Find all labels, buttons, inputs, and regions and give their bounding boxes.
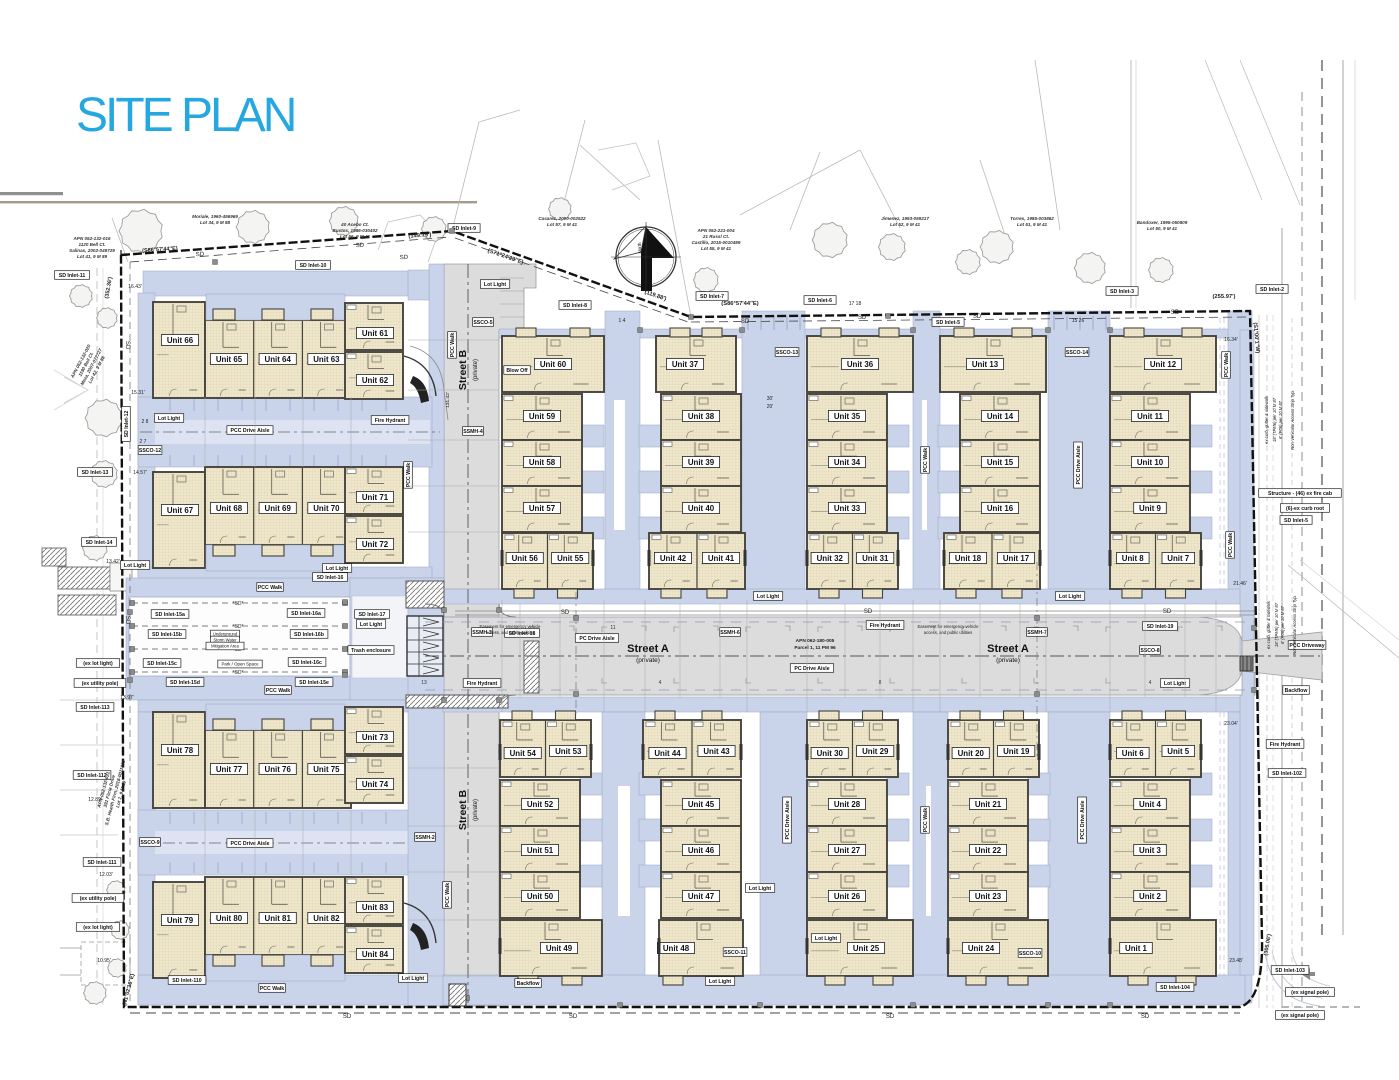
svg-text:20': 20'	[767, 404, 774, 410]
svg-text:Lot Light: Lot Light	[402, 976, 424, 982]
svg-text:17 18: 17 18	[849, 301, 862, 307]
svg-text:Salinas, 2002-049729: Salinas, 2002-049729	[69, 248, 115, 253]
svg-text:SD: SD	[1141, 1014, 1150, 1020]
svg-text:(private): (private)	[996, 657, 1020, 664]
svg-text:21.46': 21.46'	[1233, 581, 1247, 587]
svg-text:Lot Light: Lot Light	[1059, 594, 1081, 600]
svg-text:Unit 16: Unit 16	[987, 504, 1014, 513]
svg-text:APN 062-180-005: APN 062-180-005	[796, 638, 835, 644]
svg-text:SD: SD	[886, 1014, 895, 1020]
svg-text:Unit 78: Unit 78	[167, 746, 194, 755]
svg-text:Unit 53: Unit 53	[555, 747, 582, 756]
svg-text:*SD*: *SD*	[233, 670, 244, 676]
svg-text:Unit 3: Unit 3	[1139, 846, 1162, 855]
svg-text:6' (P06) per 10 M 87: 6' (P06) per 10 M 87	[1278, 400, 1283, 439]
svg-text:Unit 28: Unit 28	[834, 800, 861, 809]
svg-text:18' (TPM6) per 10 M 87: 18' (TPM6) per 10 M 87	[1272, 397, 1277, 442]
svg-text:PCC Drive Aisle: PCC Drive Aisle	[785, 800, 791, 839]
svg-text:Lot 34, 9 M 88: Lot 34, 9 M 88	[200, 220, 231, 225]
svg-text:ex curb, gutter & sidewalk: ex curb, gutter & sidewalk	[1264, 395, 1269, 444]
svg-text:Unit 54: Unit 54	[510, 749, 537, 758]
svg-text:Jimenez, 1993-059217: Jimenez, 1993-059217	[881, 216, 929, 221]
svg-text:Storm Water: Storm Water	[213, 638, 237, 643]
svg-text:SSMH-4: SSMH-4	[463, 429, 483, 435]
svg-text:PCC Drive Aisle: PCC Drive Aisle	[1080, 800, 1086, 839]
svg-text:Unit 60: Unit 60	[540, 360, 567, 369]
svg-text:Unit 6: Unit 6	[1122, 749, 1145, 758]
svg-text:SD Inlet-16a: SD Inlet-16a	[291, 611, 321, 617]
svg-text:PCC Walk: PCC Walk	[445, 883, 451, 907]
svg-text:Fire Hydrant: Fire Hydrant	[375, 418, 406, 424]
svg-text:14.57': 14.57'	[133, 470, 147, 476]
svg-text:Non-Vehicular Access Strip Typ: Non-Vehicular Access Strip Typ.	[1290, 390, 1295, 450]
svg-text:Unit 55: Unit 55	[557, 554, 584, 563]
svg-text:Unit 42: Unit 42	[660, 554, 687, 563]
svg-text:Unit 34: Unit 34	[834, 458, 861, 467]
svg-text:Unit 47: Unit 47	[688, 892, 715, 901]
svg-text:SD: SD	[858, 315, 867, 321]
svg-text:SD Inlet-5: SD Inlet-5	[936, 320, 960, 326]
svg-text:Unit 30: Unit 30	[817, 749, 844, 758]
svg-text:(private): (private)	[636, 657, 660, 664]
svg-text:Unit 70: Unit 70	[313, 504, 340, 513]
svg-text:Unit 72: Unit 72	[362, 540, 389, 549]
svg-text:Unit 61: Unit 61	[362, 329, 389, 338]
svg-text:SSMH-2: SSMH-2	[415, 835, 435, 841]
svg-text:Backflow: Backflow	[517, 981, 541, 987]
svg-text:4: 4	[659, 680, 662, 686]
svg-text:Unit 18: Unit 18	[955, 554, 982, 563]
svg-text:Unit 51: Unit 51	[527, 846, 554, 855]
svg-text:Unit 13: Unit 13	[972, 360, 999, 369]
svg-text:Unit 56: Unit 56	[512, 554, 539, 563]
svg-text:SD: SD	[1171, 310, 1180, 316]
svg-text:Unit 49: Unit 49	[546, 944, 573, 953]
svg-text:Unit 17: Unit 17	[1003, 554, 1030, 563]
svg-text:Torres, 1985-003862: Torres, 1985-003862	[1010, 216, 1054, 221]
svg-text:APN 052-221-004: APN 052-221-004	[696, 228, 734, 233]
svg-text:Unit 36: Unit 36	[847, 360, 874, 369]
svg-text:ex curb, gutter & sidewalk: ex curb, gutter & sidewalk	[1266, 600, 1271, 649]
svg-text:Unit 27: Unit 27	[834, 846, 861, 855]
svg-text:23.48': 23.48'	[1229, 958, 1243, 964]
svg-text:Unit 5: Unit 5	[1167, 747, 1190, 756]
svg-text:SD Inlet-8: SD Inlet-8	[563, 303, 587, 309]
svg-text:PCC Drive Aisle: PCC Drive Aisle	[230, 428, 269, 434]
svg-text:SSCO-9: SSCO-9	[140, 840, 159, 846]
svg-text:PC Drive Aisle: PC Drive Aisle	[579, 636, 614, 642]
svg-text:Street A: Street A	[987, 643, 1029, 655]
svg-text:Unit 12: Unit 12	[1150, 360, 1177, 369]
svg-text:Parcel 1, 11 PM 96: Parcel 1, 11 PM 96	[794, 645, 836, 651]
svg-text:Unit 62: Unit 62	[362, 376, 389, 385]
svg-text:Unit 48: Unit 48	[663, 944, 690, 953]
svg-text:SD: SD	[864, 609, 873, 615]
svg-text:Unit 19: Unit 19	[1003, 747, 1030, 756]
svg-text:Unit 74: Unit 74	[362, 780, 389, 789]
svg-text:Unit 25: Unit 25	[853, 944, 880, 953]
svg-text:(255.97′): (255.97′)	[1213, 294, 1236, 300]
svg-text:SD: SD	[973, 314, 982, 320]
svg-text:PCC Drive Aisle: PCC Drive Aisle	[230, 841, 269, 847]
svg-text:SD Inlet-19: SD Inlet-19	[1147, 624, 1174, 630]
svg-text:PCC Walk: PCC Walk	[923, 808, 929, 832]
svg-text:SD Inlet-6: SD Inlet-6	[808, 298, 832, 304]
svg-text:Unit 83: Unit 83	[362, 903, 389, 912]
svg-text:Unit 22: Unit 22	[975, 846, 1002, 855]
svg-text:PCC Walk: PCC Walk	[260, 986, 284, 992]
svg-text:SD Inlet-111: SD Inlet-111	[87, 860, 116, 866]
svg-text:SD Inlet-12: SD Inlet-12	[124, 410, 130, 437]
svg-text:18' (TPM6) per 10 M 87: 18' (TPM6) per 10 M 87	[1274, 602, 1279, 647]
svg-text:16.34': 16.34'	[1224, 337, 1238, 343]
svg-text:PCC Walk: PCC Walk	[1228, 533, 1234, 557]
svg-text:(ex utility pole): (ex utility pole)	[82, 681, 119, 687]
svg-text:PCC Drive Aisle: PCC Drive Aisle	[1076, 445, 1082, 484]
svg-text:Unit 24: Unit 24	[968, 944, 995, 953]
svg-text:Lot Light: Lot Light	[124, 563, 146, 569]
svg-text:Unit 39: Unit 39	[688, 458, 715, 467]
svg-text:30': 30'	[767, 396, 774, 402]
svg-text:2 7: 2 7	[140, 439, 147, 445]
svg-text:SD Inlet-11: SD Inlet-11	[59, 273, 86, 279]
svg-text:SD Inlet-17: SD Inlet-17	[359, 612, 386, 618]
svg-text:PCC Walk: PCC Walk	[1224, 353, 1230, 377]
svg-text:Lot Light: Lot Light	[815, 936, 837, 942]
svg-text:*SD*: *SD*	[233, 601, 244, 607]
svg-text:Unit 8: Unit 8	[1122, 554, 1145, 563]
svg-text:Trash enclosure: Trash enclosure	[351, 648, 391, 654]
svg-text:40 Acebo Ct.: 40 Acebo Ct.	[340, 222, 369, 227]
svg-text:Unit 10: Unit 10	[1137, 458, 1164, 467]
svg-text:access, and public utilities: access, and public utilities	[924, 630, 972, 635]
svg-text:Unit 40: Unit 40	[688, 504, 715, 513]
svg-text:Unit 59: Unit 59	[529, 412, 556, 421]
svg-text:15 26: 15 26	[1072, 318, 1085, 324]
svg-text:Unit 11: Unit 11	[1137, 412, 1163, 421]
svg-text:(ex utility pole): (ex utility pole)	[80, 896, 117, 902]
svg-text:Lot Light: Lot Light	[757, 594, 779, 600]
svg-text:Unit 50: Unit 50	[527, 892, 554, 901]
svg-text:Unit 73: Unit 73	[362, 733, 389, 742]
svg-text:SD Inlet-112: SD Inlet-112	[77, 773, 107, 779]
svg-text:Unit 9: Unit 9	[1139, 504, 1162, 513]
svg-text:(ex lot light): (ex lot light)	[83, 661, 113, 667]
svg-text:Street B: Street B	[457, 349, 469, 390]
svg-text:SD Inlet-16b: SD Inlet-16b	[294, 632, 324, 638]
svg-text:SSCO-11: SSCO-11	[724, 950, 746, 956]
svg-text:Unit 35: Unit 35	[834, 412, 861, 421]
svg-text:Lot 55, 9 M 41: Lot 55, 9 M 41	[701, 246, 732, 251]
svg-text:Lot Light: Lot Light	[749, 886, 771, 892]
svg-text:12.03': 12.03'	[99, 872, 113, 878]
svg-text:Unit 4: Unit 4	[1139, 800, 1162, 809]
svg-text:Unit 32: Unit 32	[817, 554, 844, 563]
svg-text:Lot 50, 9 M 41: Lot 50, 9 M 41	[1147, 226, 1178, 231]
svg-text:PCC Walk: PCC Walk	[266, 688, 290, 694]
svg-text:Unit 37: Unit 37	[672, 360, 699, 369]
svg-text:Unit 79: Unit 79	[167, 916, 194, 925]
svg-text:SD: SD	[196, 252, 205, 259]
svg-text:(ex lot light): (ex lot light)	[83, 925, 113, 931]
svg-text:SD Inlet-14: SD Inlet-14	[86, 540, 113, 546]
svg-text:SD: SD	[356, 243, 365, 250]
svg-text:APN 052-132-016: APN 052-132-016	[72, 236, 110, 241]
svg-text:*SD*: *SD*	[233, 624, 244, 630]
svg-text:Lot Light: Lot Light	[709, 979, 731, 985]
svg-text:4: 4	[1149, 680, 1152, 686]
svg-text:SD Inlet-113: SD Inlet-113	[80, 705, 110, 711]
svg-text:Street B: Street B	[457, 789, 469, 830]
svg-text:Unit 63: Unit 63	[313, 355, 340, 364]
svg-text:Unit 65: Unit 65	[216, 355, 243, 364]
svg-text:Street A: Street A	[627, 643, 669, 655]
svg-text:SD: SD	[1163, 609, 1172, 615]
svg-text:Lot Light: Lot Light	[326, 566, 348, 572]
svg-text:Underground: Underground	[213, 632, 238, 637]
svg-text:Unit 64: Unit 64	[265, 355, 292, 364]
svg-text:SD Inlet-104: SD Inlet-104	[1160, 985, 1190, 991]
svg-text:Unit 71: Unit 71	[362, 493, 389, 502]
svg-text:SD Inlet-10: SD Inlet-10	[300, 263, 327, 269]
svg-text:Lot 56, 9 M 41: Lot 56, 9 M 41	[340, 234, 371, 239]
svg-text:SSMH-7: SSMH-7	[1027, 630, 1047, 636]
svg-text:Unit 14: Unit 14	[987, 412, 1014, 421]
svg-text:Unit 81: Unit 81	[265, 914, 292, 923]
svg-text:Unit 77: Unit 77	[216, 765, 243, 774]
svg-text:PCC Walk: PCC Walk	[923, 448, 929, 472]
svg-text:Casarez, 2000-002522: Casarez, 2000-002522	[538, 216, 586, 221]
svg-text:Unit 21: Unit 21	[975, 800, 1002, 809]
svg-text:Mitigation Area: Mitigation Area	[211, 644, 239, 649]
svg-text:Fire Hydrant: Fire Hydrant	[1270, 742, 1301, 748]
svg-text:(ex signal pole): (ex signal pole)	[1281, 1013, 1319, 1019]
svg-text:SD: SD	[124, 616, 130, 625]
svg-text:2 8: 2 8	[142, 419, 149, 425]
svg-text:13.42': 13.42'	[106, 559, 120, 565]
svg-text:PCC Walk: PCC Walk	[406, 463, 412, 487]
svg-text:SD Inlet-5: SD Inlet-5	[1284, 518, 1308, 524]
svg-text:6' (P06) per 10 M 87: 6' (P06) per 10 M 87	[1280, 605, 1285, 644]
svg-text:Unit 7: Unit 7	[1167, 554, 1190, 563]
svg-text:21 Russl Ct.: 21 Russl Ct.	[702, 234, 729, 239]
svg-text:SD: SD	[124, 341, 130, 350]
svg-text:SD: SD	[400, 255, 409, 262]
svg-text:Unit 82: Unit 82	[313, 914, 340, 923]
svg-text:SD Inlet-16: SD Inlet-16	[317, 575, 344, 581]
svg-text:Unit 33: Unit 33	[834, 504, 861, 513]
svg-text:Lot 51, 9 M 41: Lot 51, 9 M 41	[1017, 222, 1048, 227]
svg-text:Lot Light: Lot Light	[1164, 681, 1186, 687]
svg-text:Unit 58: Unit 58	[529, 458, 556, 467]
svg-text:Unit 15: Unit 15	[987, 458, 1014, 467]
svg-text:Unit 84: Unit 84	[362, 950, 389, 959]
svg-text:Fire Hydrant: Fire Hydrant	[870, 623, 901, 629]
svg-text:SD Inlet-15b: SD Inlet-15b	[152, 632, 182, 638]
svg-text:Castillo, 2015-0010489: Castillo, 2015-0010489	[692, 240, 741, 245]
svg-text:PC Drive Aisle: PC Drive Aisle	[794, 666, 829, 672]
svg-text:Moriale, 1960-456969: Moriale, 1960-456969	[192, 214, 238, 219]
svg-text:SD Inlet-15e: SD Inlet-15e	[299, 680, 329, 686]
svg-text:SD Inlet-7: SD Inlet-7	[700, 294, 724, 300]
svg-text:Unit 57: Unit 57	[529, 504, 556, 513]
svg-text:SD Inlet-15c: SD Inlet-15c	[147, 661, 177, 667]
svg-text:Easement for emergency vehicle: Easement for emergency vehicle	[918, 624, 980, 629]
svg-text:15.31': 15.31'	[131, 390, 145, 396]
svg-text:SSCO-8: SSCO-8	[1140, 648, 1159, 654]
svg-text:Unit 66: Unit 66	[167, 336, 194, 345]
svg-text:13.97': 13.97'	[120, 695, 134, 701]
svg-text:(private): (private)	[473, 799, 479, 821]
svg-text:PCC Walk: PCC Walk	[258, 585, 282, 591]
svg-text:access, and public utilities: access, and public utilities	[486, 630, 534, 635]
svg-text:Unit 43: Unit 43	[703, 747, 730, 756]
svg-text:Park / Open Space: Park / Open Space	[221, 662, 259, 667]
svg-text:Unit 67: Unit 67	[167, 506, 194, 515]
svg-text:SD Inlet-13: SD Inlet-13	[82, 470, 109, 476]
svg-text:SD Inlet-16c: SD Inlet-16c	[292, 660, 322, 666]
svg-text:Unit 26: Unit 26	[834, 892, 861, 901]
svg-text:Unit 44: Unit 44	[654, 749, 681, 758]
svg-text:Structure - (46) ex fire cab: Structure - (46) ex fire cab	[1268, 491, 1332, 497]
svg-text:10.95': 10.95'	[97, 958, 111, 964]
svg-text:Lot Light: Lot Light	[158, 416, 180, 422]
svg-text:SD: SD	[569, 1014, 578, 1020]
svg-text:Unit 20: Unit 20	[958, 749, 985, 758]
svg-text:(6)-ex curb root: (6)-ex curb root	[1286, 506, 1324, 512]
svg-text:(private): (private)	[473, 359, 479, 381]
svg-text:SD Inlet-9: SD Inlet-9	[452, 226, 476, 232]
svg-text:SSCO-14: SSCO-14	[1066, 350, 1088, 356]
svg-text:Unit 52: Unit 52	[527, 800, 554, 809]
svg-text:11: 11	[610, 625, 615, 631]
svg-text:Unit 38: Unit 38	[688, 412, 715, 421]
svg-text:23.04': 23.04'	[1224, 721, 1238, 727]
svg-text:131.42': 131.42'	[445, 392, 451, 408]
svg-text:SSCO-13: SSCO-13	[776, 350, 798, 356]
svg-text:Unit 31: Unit 31	[862, 554, 889, 563]
svg-text:SSCO-12: SSCO-12	[139, 448, 161, 454]
svg-text:Non-Vehicular Access Strip Typ: Non-Vehicular Access Strip Typ.	[1292, 595, 1297, 655]
svg-text:(S86°57′44″E): (S86°57′44″E)	[721, 301, 758, 307]
svg-text:13: 13	[421, 680, 427, 686]
svg-text:SSMH-6: SSMH-6	[720, 630, 740, 636]
svg-text:Unit 75: Unit 75	[313, 765, 340, 774]
svg-text:Unit 29: Unit 29	[862, 747, 889, 756]
svg-text:Lot Light: Lot Light	[360, 622, 382, 628]
svg-text:16.43': 16.43'	[128, 284, 142, 290]
svg-text:Unit 2: Unit 2	[1139, 892, 1162, 901]
svg-text:(ex signal pole): (ex signal pole)	[1291, 990, 1329, 996]
svg-text:SD Inlet-15a: SD Inlet-15a	[155, 612, 185, 618]
svg-text:SD: SD	[561, 610, 570, 616]
svg-text:Lot 52, 9 M 41: Lot 52, 9 M 41	[890, 222, 921, 227]
svg-text:SD Inlet-2: SD Inlet-2	[1260, 287, 1284, 293]
svg-text:Easement for emergency vehicle: Easement for emergency vehicle	[480, 624, 542, 629]
svg-text:Lot 41, 9 M 89: Lot 41, 9 M 89	[77, 254, 108, 259]
svg-text:Fire Hydrant: Fire Hydrant	[467, 681, 498, 687]
svg-text:SD: SD	[741, 319, 750, 325]
svg-text:Unit 23: Unit 23	[975, 892, 1002, 901]
svg-text:Unit 41: Unit 41	[708, 554, 735, 563]
svg-text:Lot Light: Lot Light	[484, 282, 506, 288]
svg-text:1 4: 1 4	[619, 318, 626, 324]
svg-text:Unit 45: Unit 45	[688, 800, 715, 809]
svg-text:Blow Off: Blow Off	[506, 368, 528, 374]
svg-text:SD Inlet-103: SD Inlet-103	[1275, 968, 1305, 974]
svg-text:1120 Bell Ct.: 1120 Bell Ct.	[79, 242, 106, 247]
svg-text:Unit 1: Unit 1	[1125, 944, 1148, 953]
svg-text:Lot 57, 9 M 41: Lot 57, 9 M 41	[547, 222, 578, 227]
svg-text:Bustos, 1986-030402: Bustos, 1986-030402	[332, 228, 378, 233]
svg-text:Unit 80: Unit 80	[216, 914, 243, 923]
svg-text:Unit 76: Unit 76	[265, 765, 292, 774]
svg-text:SSCO-5: SSCO-5	[473, 320, 492, 326]
svg-text:SD Inlet-3: SD Inlet-3	[1110, 289, 1134, 295]
svg-text:Unit 69: Unit 69	[265, 504, 292, 513]
svg-text:PCC Walk: PCC Walk	[450, 333, 456, 357]
svg-text:SITE PLAN: SITE PLAN	[76, 89, 294, 142]
svg-text:Bandoxer, 1995-050809: Bandoxer, 1995-050809	[1137, 220, 1188, 225]
svg-text:Backflow: Backflow	[1285, 688, 1309, 694]
svg-text:SD Inlet-110: SD Inlet-110	[172, 978, 202, 984]
svg-text:SD Inlet-102: SD Inlet-102	[1272, 771, 1302, 777]
svg-text:SD: SD	[343, 1014, 352, 1020]
svg-text:Unit 46: Unit 46	[688, 846, 715, 855]
svg-text:SD Inlet-15d: SD Inlet-15d	[170, 680, 200, 686]
svg-text:SSCO-10: SSCO-10	[1019, 951, 1041, 957]
svg-text:Unit 68: Unit 68	[216, 504, 243, 513]
svg-text:North: North	[637, 242, 642, 254]
